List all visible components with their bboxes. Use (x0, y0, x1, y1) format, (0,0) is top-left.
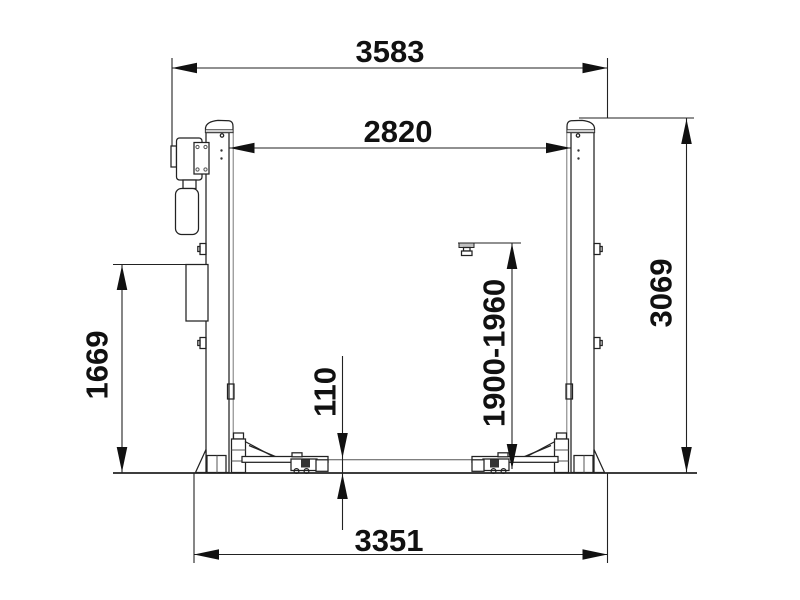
left-post-clip (200, 338, 206, 349)
motor-box-step (171, 146, 177, 167)
arrowhead-bottom (117, 447, 128, 472)
diagram-canvas: 3583 2820 3069 1669 1900-1960 110 (0, 0, 800, 600)
dim-base-width: 3351 (194, 473, 608, 563)
lift-pad-symbol (459, 243, 474, 256)
right-carriage-body (555, 439, 569, 473)
right-arm-pad-detail (490, 460, 499, 468)
right-post-hole (577, 149, 579, 151)
motor-cylinder (176, 189, 199, 235)
two-post-lift-drawing: 3583 2820 3069 1669 1900-1960 110 (0, 0, 800, 600)
left-post-clip-tab (198, 341, 200, 346)
arrowhead-right (583, 63, 608, 73)
right-post-clip-tab (600, 247, 602, 252)
left-arm-tab (292, 453, 302, 457)
left-gusset (196, 450, 207, 473)
arrowhead-top (507, 244, 518, 270)
left-post-body (206, 133, 229, 473)
pad-plate (459, 243, 474, 248)
dim-inner-width-label: 2820 (364, 114, 433, 149)
dim-lift-range-label: 1900-1960 (477, 279, 512, 427)
arrowhead-top (681, 119, 692, 144)
arrowhead-down (337, 433, 348, 458)
left-post-hole (220, 157, 222, 159)
dim-pad-height: 110 (308, 356, 348, 530)
right-post-body (571, 133, 594, 473)
dim-inner-width: 2820 (230, 114, 572, 153)
left-post-clip (200, 244, 206, 255)
left-carriage-body (232, 439, 246, 473)
arrowhead-bottom (681, 447, 692, 472)
right-post-clip-tab (600, 341, 602, 346)
left-carriage (232, 433, 246, 473)
dim-top-width-label: 3583 (356, 34, 425, 69)
right-post-hole (577, 157, 579, 159)
left-post-cap-band (206, 130, 234, 133)
right-arm-tab (498, 453, 508, 457)
arrowhead-up (337, 474, 348, 499)
right-arm-adapter (472, 460, 484, 472)
dim-base-width-label: 3351 (355, 523, 424, 558)
left-arm-pad-detail (301, 460, 310, 468)
right-post-clip (594, 244, 600, 255)
left-arm-adapter (316, 460, 328, 472)
motor-neck (183, 180, 196, 189)
arrowhead-left (194, 549, 219, 559)
pad-base (462, 251, 473, 256)
dim-right-height: 3069 (579, 118, 694, 473)
dim-left-height-label: 1669 (80, 331, 115, 400)
left-arm (242, 442, 328, 474)
arrowhead-left (172, 63, 197, 73)
arrowhead-top (117, 266, 128, 291)
dim-left-height: 1669 (80, 265, 187, 473)
right-gusset (594, 450, 605, 473)
dim-lift-range: 1900-1960 (458, 243, 521, 469)
left-post-hole (220, 149, 222, 151)
control-box (186, 265, 208, 322)
left-carriage-cap (234, 433, 244, 439)
left-post-clip-tab (198, 247, 200, 252)
right-post (566, 120, 602, 472)
arrowhead-right (583, 549, 608, 559)
right-post-cap-band (567, 130, 595, 133)
right-carriage (555, 433, 569, 473)
right-post-clip (594, 338, 600, 349)
right-carriage-cap (557, 433, 567, 439)
motor-unit (171, 138, 209, 235)
dim-right-height-label: 3069 (644, 259, 679, 328)
dim-pad-height-label: 110 (308, 367, 343, 417)
